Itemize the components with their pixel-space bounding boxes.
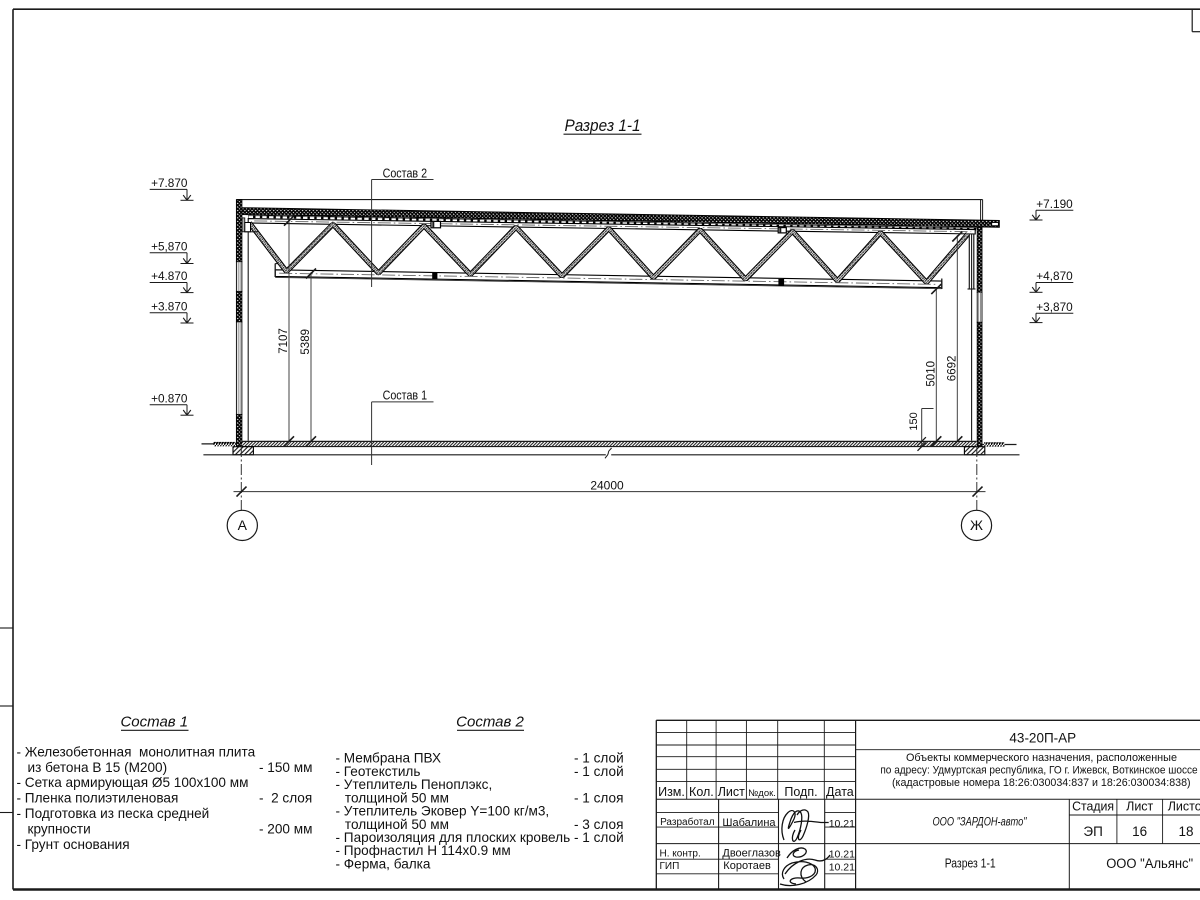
svg-text:Листов: Листов [1168,800,1200,814]
svg-text:- Пленка полиэтиленовая: - Пленка полиэтиленовая [17,791,179,806]
svg-text:Изм.: Изм. [658,785,685,799]
svg-text:43-20П-АР: 43-20П-АР [1009,730,1076,745]
svg-text:Лист: Лист [1126,800,1153,814]
svg-text:+4,870: +4,870 [1036,269,1073,283]
svg-text:Разработал: Разработал [660,816,715,828]
svg-text:18: 18 [1178,824,1193,839]
svg-text:- 1 слоя: - 1 слоя [574,790,623,805]
svg-text:- Сетка армирующая Ø5 100х100: - Сетка армирующая Ø5 100х100 мм [17,775,249,790]
svg-text:(кадастровые номера 18:26:0300: (кадастровые номера 18:26:030034:837 и 1… [892,777,1191,789]
svg-text:- 200 мм: - 200 мм [259,822,312,837]
svg-text:Ж: Ж [970,517,983,533]
svg-text:Дата: Дата [826,785,854,799]
svg-text:Подп.: Подп. [784,785,817,799]
svg-text:10.21: 10.21 [829,862,855,874]
svg-text:ООО "Альянс": ООО "Альянс" [1106,856,1193,871]
svg-text:10.21: 10.21 [829,848,855,860]
svg-text:+5,870: +5,870 [151,239,188,253]
svg-text:Стадия: Стадия [1072,800,1114,814]
svg-text:Состав 2: Состав 2 [456,714,524,731]
svg-text:Состав 1: Состав 1 [383,389,428,403]
svg-text:Разрез 1-1: Разрез 1-1 [945,857,996,871]
svg-text:А: А [238,517,248,533]
svg-text:Шабалина: Шабалина [722,817,776,829]
svg-text:Кол.: Кол. [689,785,714,799]
svg-text:№док.: №док. [748,788,776,799]
svg-text:24000: 24000 [590,478,624,492]
svg-text:- 1 слой: - 1 слой [574,830,624,845]
svg-text:+0.870: +0.870 [151,391,188,405]
svg-text:+7.870: +7.870 [151,176,188,190]
svg-text:10.21: 10.21 [829,818,855,830]
svg-text:- Подготовка из песка средней: - Подготовка из песка средней [17,806,210,821]
svg-text:Лист: Лист [718,785,745,799]
svg-text:крупности: крупности [28,822,91,837]
svg-text:- Железобетонная монолитная п: - Железобетонная монолитная плита [17,744,256,759]
svg-text:Состав 1: Состав 1 [120,714,188,731]
svg-text:- 150 мм: - 150 мм [259,760,312,775]
svg-text:- Ферма, балка: - Ферма, балка [336,857,431,872]
svg-text:Разрез 1-1: Разрез 1-1 [565,117,641,135]
svg-text:5010: 5010 [926,361,938,387]
svg-text:Объекты коммерческого назначен: Объекты коммерческого назначения, распол… [906,752,1177,764]
svg-text:150: 150 [908,412,920,430]
svg-text:ЭП: ЭП [1083,824,1102,839]
svg-text:Коротаев: Коротаев [723,860,771,872]
svg-text:Н. контр.: Н. контр. [660,848,701,859]
svg-text:5389: 5389 [300,329,312,355]
svg-text:- Грунт основания: - Грунт основания [17,837,130,852]
svg-text:+3,870: +3,870 [1036,300,1073,314]
svg-text:16: 16 [1132,824,1147,839]
svg-text:+3.870: +3.870 [151,299,188,313]
svg-text:- 2 слоя: - 2 слоя [259,791,312,806]
svg-text:ООО "ЗАРДОН-авто": ООО "ЗАРДОН-авто" [933,815,1028,829]
svg-text:7107: 7107 [278,328,290,354]
svg-text:+7.190: +7.190 [1036,197,1073,211]
svg-text:по адресу: Удмуртская республи: по адресу: Удмуртская республика, ГО г. … [880,765,1197,777]
svg-text:+4.870: +4.870 [151,269,188,283]
svg-text:Состав 2: Состав 2 [383,166,428,180]
svg-text:- 1 слой: - 1 слой [574,764,624,779]
svg-text:из бетона В 15 (М200): из бетона В 15 (М200) [28,760,168,775]
svg-text:6692: 6692 [946,356,958,382]
svg-text:Двоеглазов: Двоеглазов [722,847,781,859]
svg-text:ГИП: ГИП [660,861,680,872]
